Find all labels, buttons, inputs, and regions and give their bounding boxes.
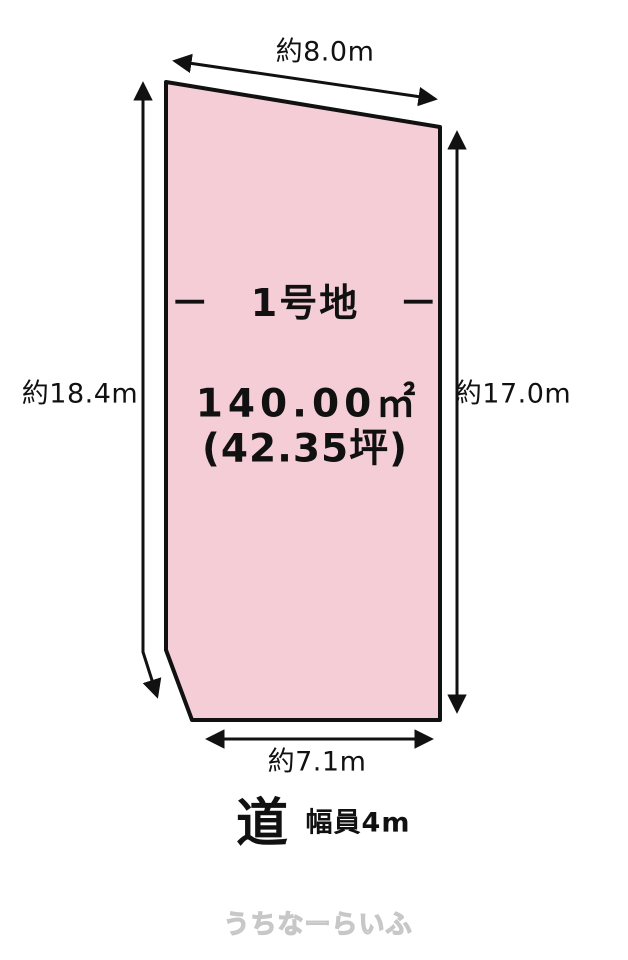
dimension-arrow-left <box>143 84 157 696</box>
dimension-label-bottom: 約7.1m <box>268 749 367 776</box>
watermark-logo: うちなーらいふ <box>223 912 412 938</box>
dimension-label-left: 約18.4m <box>22 381 138 408</box>
road-label: 道 <box>236 798 288 850</box>
plot-area-m2: 140.00㎡ <box>196 385 421 424</box>
plot-area-tsubo: (42.35坪) <box>202 430 408 469</box>
plot-title: － 1号地 － <box>171 284 439 322</box>
land-plot-diagram: 約8.0m 約18.4m 約17.0m 約7.1m － 1号地 － 140.00… <box>0 0 628 960</box>
dimension-label-right: 約17.0m <box>455 381 571 408</box>
dimension-label-top: 約8.0m <box>276 39 375 66</box>
road-width-label: 幅員4m <box>306 810 411 837</box>
